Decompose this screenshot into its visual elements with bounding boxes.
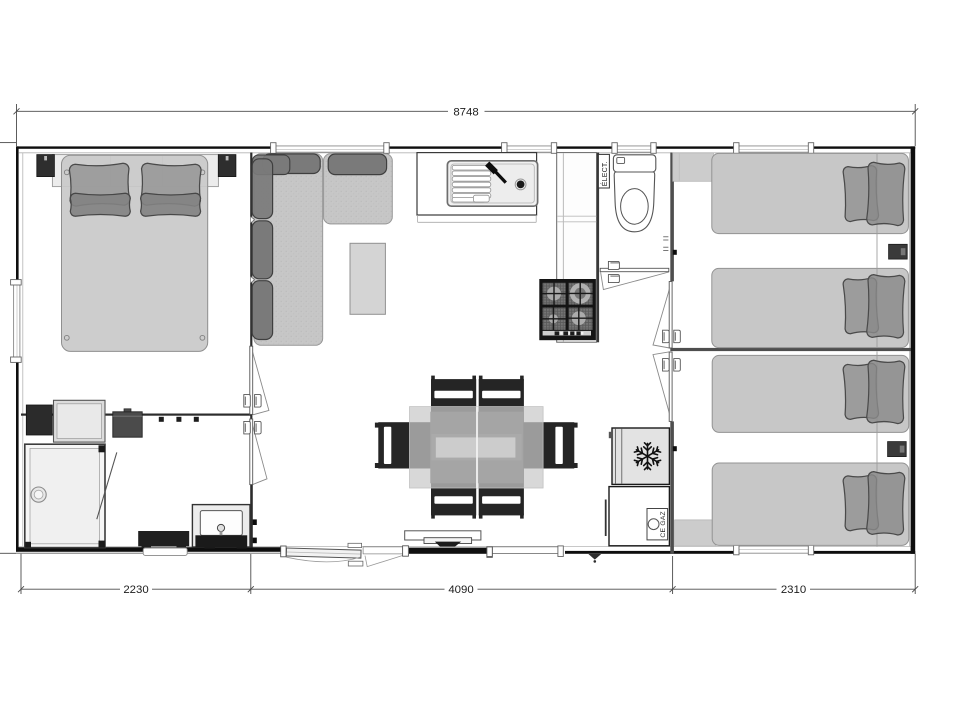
svg-text:8748: 8748: [453, 106, 478, 118]
svg-text:4090: 4090: [448, 584, 473, 596]
svg-text:ÉLECT.: ÉLECT.: [600, 161, 609, 186]
svg-text:CE GAZ: CE GAZ: [660, 511, 667, 538]
svg-text:2230: 2230: [123, 584, 148, 596]
svg-text:2310: 2310: [781, 584, 806, 596]
